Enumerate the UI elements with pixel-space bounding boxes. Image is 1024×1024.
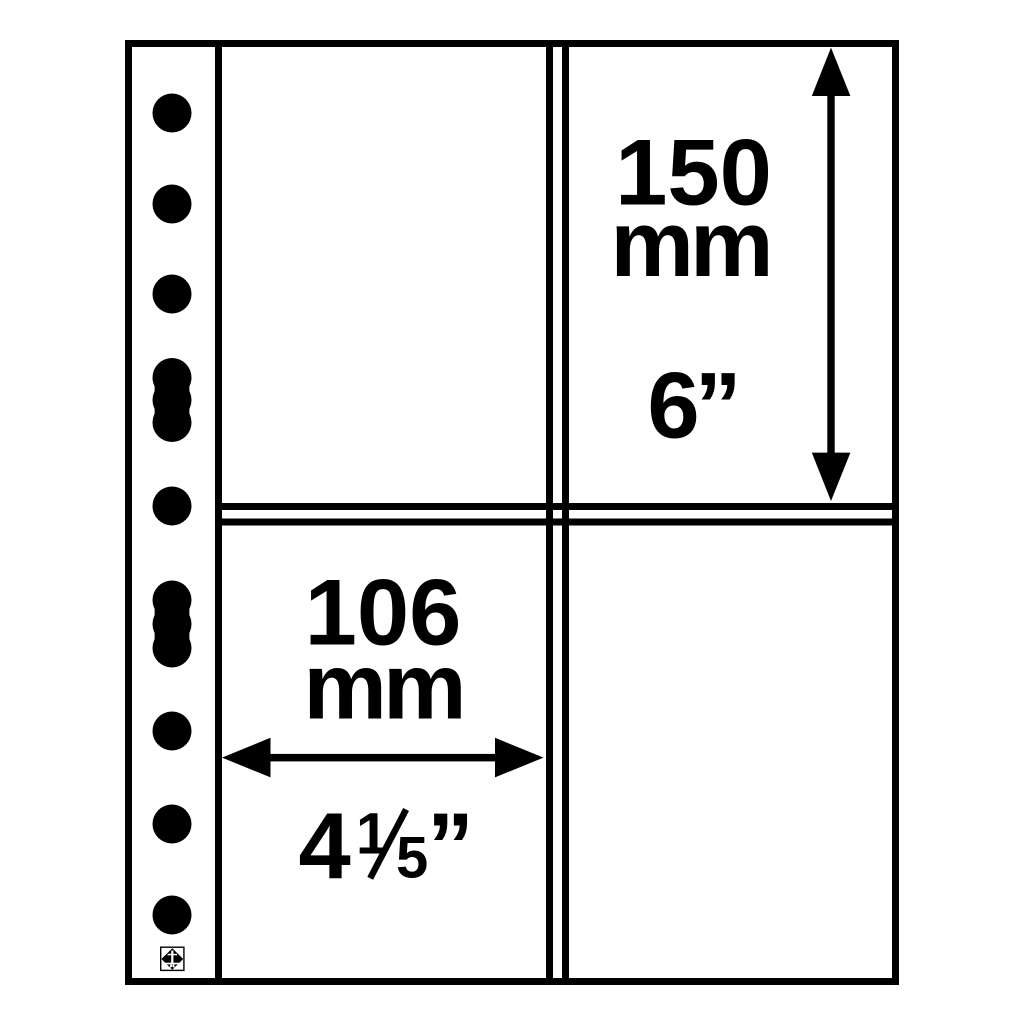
svg-text:mm: mm [610, 191, 769, 296]
svg-text:5: 5 [396, 826, 428, 891]
svg-text:4: 4 [299, 793, 351, 898]
svg-text:”: ” [427, 793, 474, 898]
svg-text:mm: mm [303, 634, 462, 739]
svg-text:6”: 6” [647, 353, 736, 458]
